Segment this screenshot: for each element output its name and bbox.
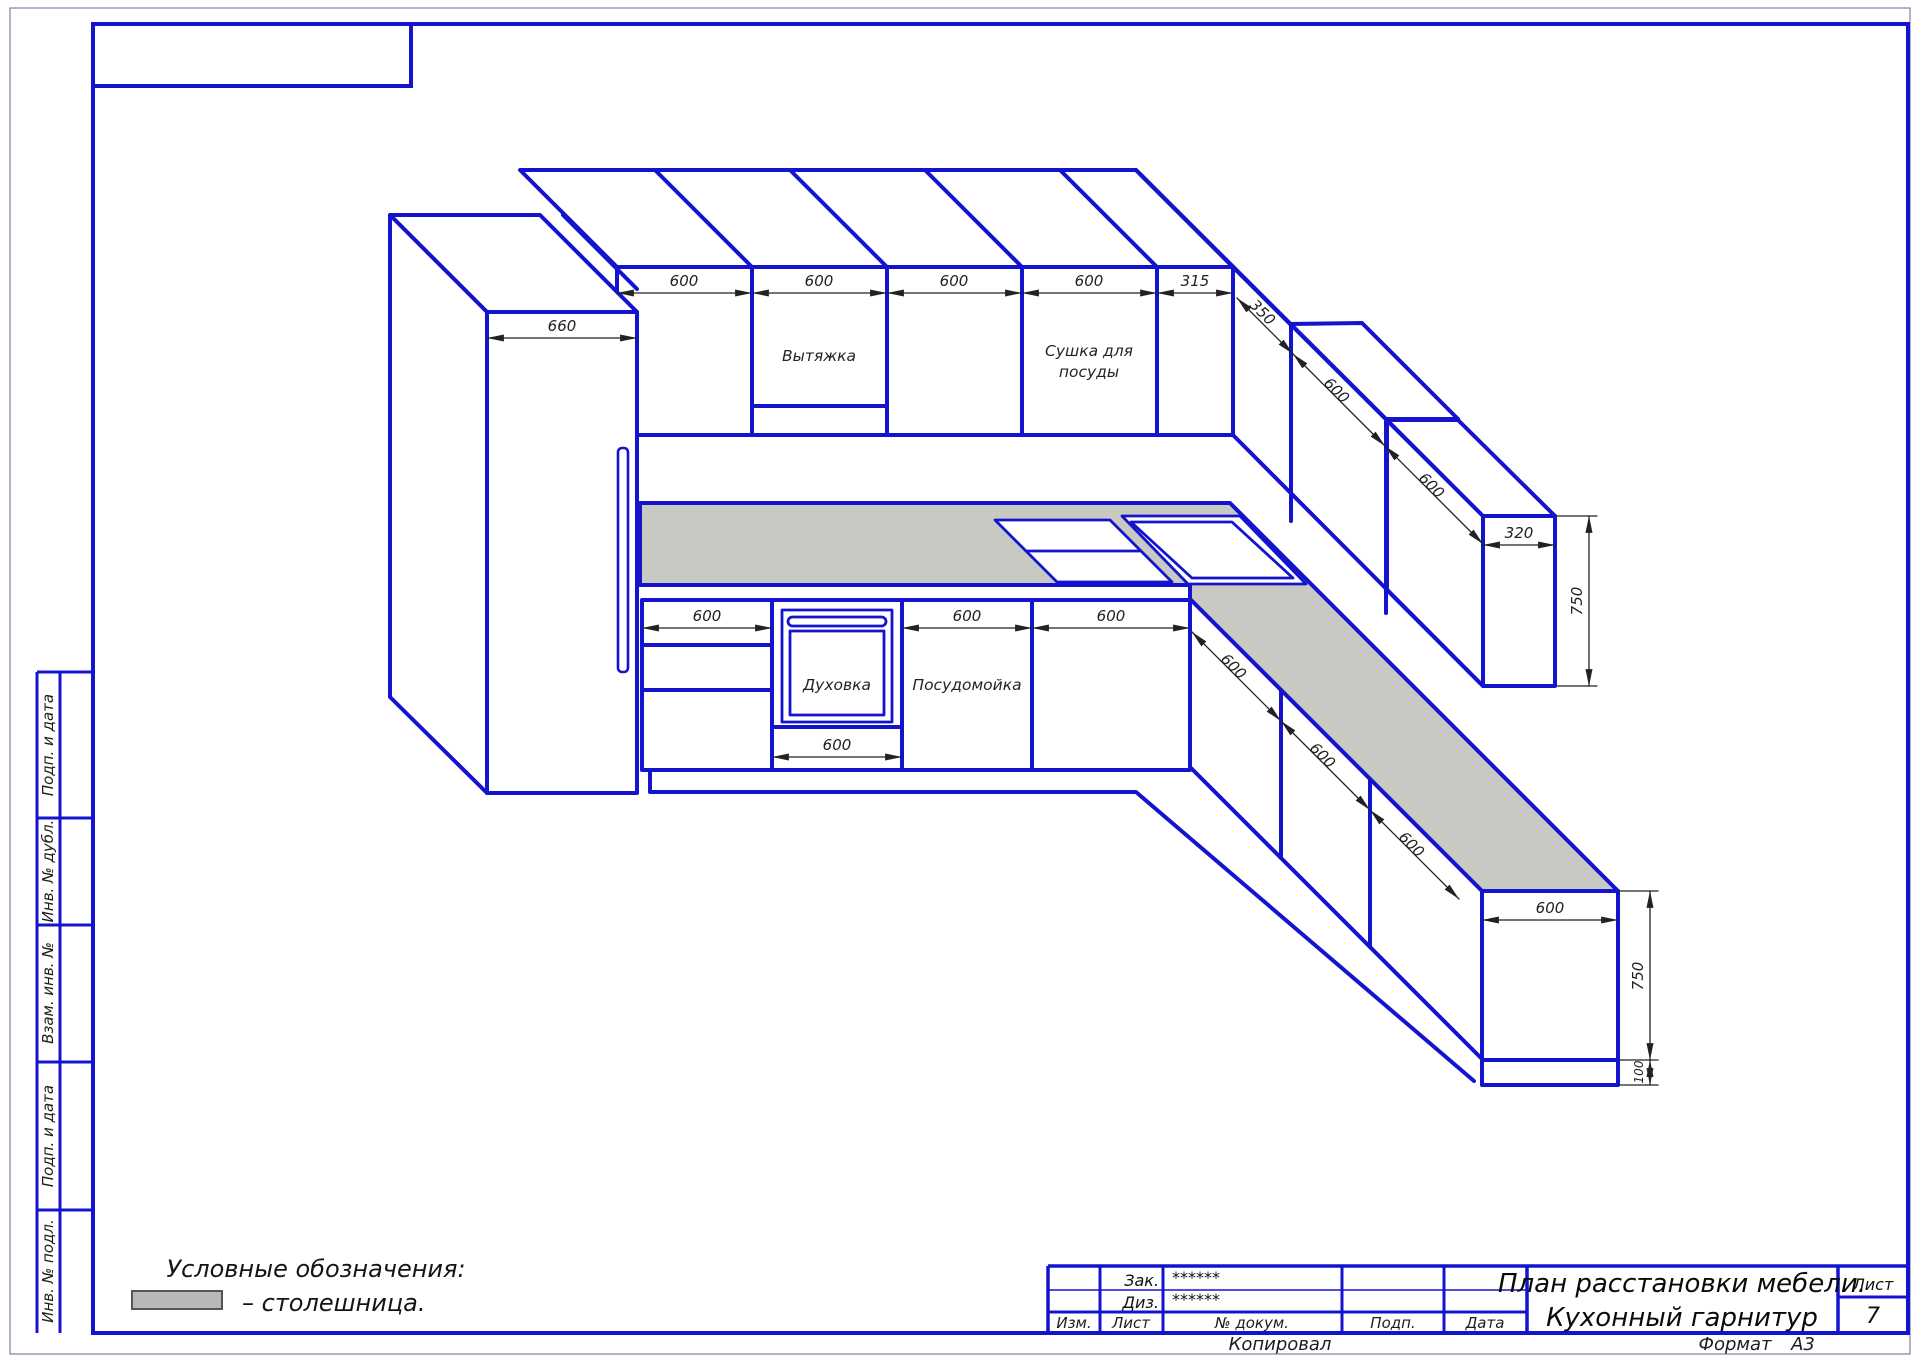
oven-handle <box>788 617 886 626</box>
col-podp: Подп. <box>1370 1314 1415 1332</box>
designer-value: ****** <box>1172 1290 1220 1309</box>
col-izm: Изм. <box>1056 1314 1091 1332</box>
dim-base-plinth: 100 <box>1632 1060 1646 1083</box>
side-stamp-cell-3: Взам. инв. № <box>39 942 57 1044</box>
dim-upper-5: 315 <box>1181 272 1210 290</box>
customer-value: ****** <box>1172 1268 1220 1287</box>
dim-base-3: 600 <box>1097 607 1126 625</box>
customer-label: Зак. <box>1124 1271 1159 1290</box>
side-stamp-cell-1: Подп. и дата <box>39 694 57 796</box>
dim-base-1: 600 <box>693 607 722 625</box>
side-stamp-cell-4: Подп. и дата <box>39 1085 57 1187</box>
fridge-handle <box>618 448 628 672</box>
dim-upper-end-height: 750 <box>1568 587 1586 616</box>
designer-label: Диз. <box>1122 1293 1160 1312</box>
dim-base-end-height: 750 <box>1629 962 1647 991</box>
fridge-side-face <box>390 215 487 793</box>
oven <box>782 610 892 722</box>
copied-label: Копировал <box>1229 1334 1332 1355</box>
col-data: Дата <box>1465 1314 1505 1332</box>
upper-cabinets-front <box>617 267 1233 435</box>
tall-cabinet-fridge <box>390 215 637 793</box>
format-label: Формат <box>1698 1334 1772 1355</box>
sheet-number: 7 <box>1866 1304 1880 1329</box>
dim-base-end-width: 600 <box>1536 899 1565 917</box>
oven-label: Духовка <box>802 676 871 694</box>
side-stamp-cell-5: Инв. № подл. <box>39 1219 57 1322</box>
dim-upper-1: 600 <box>670 272 699 290</box>
dim-upper-3: 600 <box>940 272 969 290</box>
dim-upper-4: 600 <box>1075 272 1104 290</box>
col-dokum: № докум. <box>1214 1314 1289 1332</box>
fridge-front-face <box>487 312 637 793</box>
legend-item-label: – столешница. <box>242 1289 426 1317</box>
oven-door <box>790 631 884 715</box>
dim-upper-2: 600 <box>805 272 834 290</box>
dish-dryer-label-line2: посуды <box>1059 363 1119 381</box>
upper-cabinets-top-face <box>520 170 1233 267</box>
legend-heading: Условные обозначения: <box>166 1255 465 1283</box>
dim-upper-end-width: 320 <box>1505 524 1534 542</box>
drawing-sheet: Вытяжка Сушка для посуды Духовка Посудом… <box>0 0 1920 1359</box>
dim-base-2: 600 <box>953 607 982 625</box>
dishwasher-label: Посудомойка <box>912 676 1021 694</box>
sheet-label: Лист <box>1852 1275 1894 1294</box>
side-stamp-cell-2: Инв. № дубл. <box>39 820 57 923</box>
drawing-title-line1: План расстановки мебели. <box>1498 1269 1866 1299</box>
hood-label: Вытяжка <box>782 347 856 365</box>
format-value: А3 <box>1790 1334 1815 1355</box>
dish-dryer-label-line1: Сушка для <box>1045 342 1133 360</box>
drawing-title-line2: Кухонный гарнитур <box>1546 1303 1818 1333</box>
dim-fridge-width: 660 <box>548 317 577 335</box>
col-list: Лист <box>1111 1314 1151 1332</box>
dim-oven-width: 600 <box>823 736 852 754</box>
legend-countertop-swatch <box>132 1291 222 1309</box>
